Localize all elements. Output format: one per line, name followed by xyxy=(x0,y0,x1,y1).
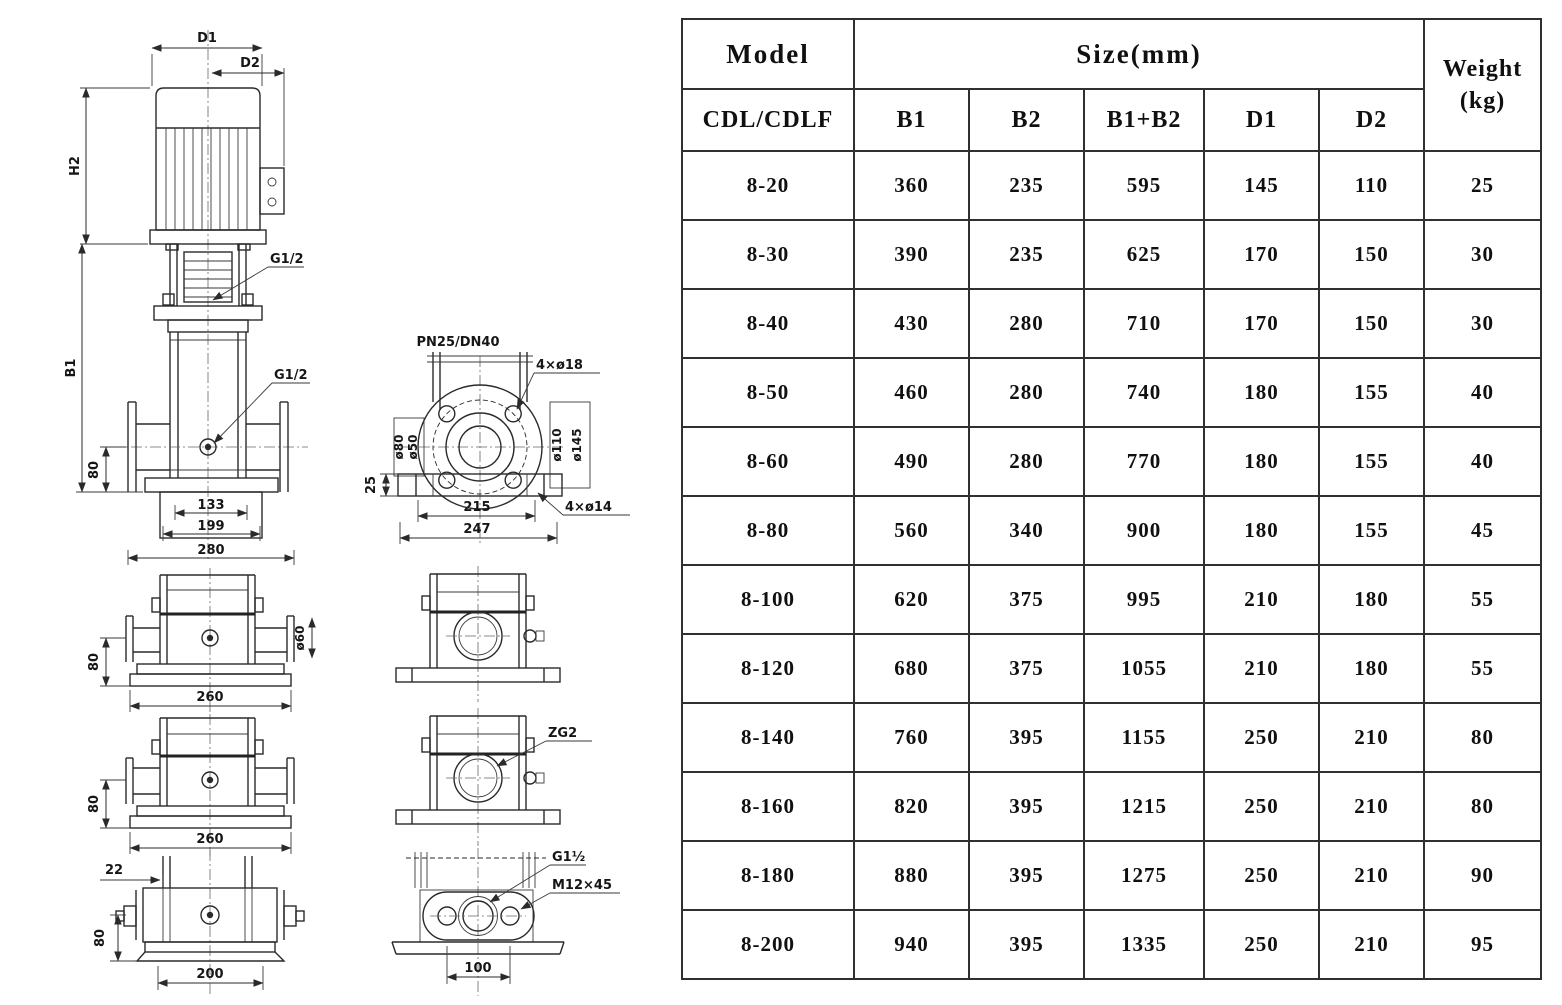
cell-b2: 395 xyxy=(969,703,1084,772)
dim-label-d1: D1 xyxy=(197,31,217,46)
dim-label-h2: H2 xyxy=(68,156,83,176)
header-col-d2: D2 xyxy=(1319,89,1424,151)
cell-weight: 80 xyxy=(1424,772,1541,841)
dim-label-80-bottom: 80 xyxy=(93,929,108,947)
cell-model: 8-200 xyxy=(682,910,854,979)
cell-d1: 250 xyxy=(1204,703,1319,772)
cell-b1: 940 xyxy=(854,910,969,979)
dim-label-100: 100 xyxy=(464,961,491,976)
table-row: 8-50 460 280 740 180 155 40 xyxy=(682,358,1541,427)
callout-label-g12-side: G1/2 xyxy=(274,368,308,383)
cell-weight: 40 xyxy=(1424,358,1541,427)
cell-b1: 360 xyxy=(854,151,969,220)
cell-weight: 55 xyxy=(1424,634,1541,703)
cell-b2: 375 xyxy=(969,565,1084,634)
table-row: 8-100 620 375 995 210 180 55 xyxy=(682,565,1541,634)
header-col-b2: B2 xyxy=(969,89,1084,151)
flange-title-label: PN25/DN40 xyxy=(416,335,499,350)
cell-weight: 45 xyxy=(1424,496,1541,565)
cell-b1-plus-b2: 625 xyxy=(1084,220,1204,289)
cell-d1: 210 xyxy=(1204,634,1319,703)
cell-b2: 280 xyxy=(969,427,1084,496)
dim-label-215: 215 xyxy=(463,500,490,515)
cell-model: 8-140 xyxy=(682,703,854,772)
cell-b1: 760 xyxy=(854,703,969,772)
cell-b2: 395 xyxy=(969,910,1084,979)
cell-b2: 235 xyxy=(969,151,1084,220)
header-model: Model xyxy=(682,19,854,89)
cell-d2: 210 xyxy=(1319,772,1424,841)
dim-label-d110: ø110 xyxy=(550,428,564,461)
header-col-d1: D1 xyxy=(1204,89,1319,151)
dim-label-133: 133 xyxy=(197,498,224,513)
cell-d1: 250 xyxy=(1204,772,1319,841)
cell-b1-plus-b2: 595 xyxy=(1084,151,1204,220)
cell-d2: 150 xyxy=(1319,289,1424,358)
cell-d2: 180 xyxy=(1319,634,1424,703)
dim-label-200: 200 xyxy=(196,967,223,982)
table-row: 8-30 390 235 625 170 150 30 xyxy=(682,220,1541,289)
spec-sheet-page: D1 D2 xyxy=(0,0,1562,1000)
dim-label-d60: ø60 xyxy=(293,626,307,651)
dim-label-d50: ø50 xyxy=(406,435,420,460)
cell-weight: 40 xyxy=(1424,427,1541,496)
dimension-table-pane: Model Size(mm) Weight (kg) CDL/CDLF B1 B… xyxy=(681,18,1540,980)
cell-d2: 155 xyxy=(1319,496,1424,565)
cell-d1: 210 xyxy=(1204,565,1319,634)
cell-d1: 145 xyxy=(1204,151,1319,220)
table-body: 8-20 360 235 595 145 110 25 8-30 390 235… xyxy=(682,151,1541,979)
cell-b1-plus-b2: 710 xyxy=(1084,289,1204,358)
cell-model: 8-20 xyxy=(682,151,854,220)
cell-b1: 680 xyxy=(854,634,969,703)
cell-model: 8-100 xyxy=(682,565,854,634)
cell-b2: 280 xyxy=(969,289,1084,358)
port-view-lower: ZG2 xyxy=(396,708,592,846)
dim-label-b1: B1 xyxy=(64,359,79,378)
header-model-sub: CDL/CDLF xyxy=(682,89,854,151)
dim-label-247: 247 xyxy=(463,522,490,537)
cell-d2: 210 xyxy=(1319,910,1424,979)
cell-d2: 180 xyxy=(1319,565,1424,634)
callout-label-g12-top: G1/2 xyxy=(270,252,304,267)
cell-b2: 395 xyxy=(969,772,1084,841)
cell-d2: 150 xyxy=(1319,220,1424,289)
cell-d2: 210 xyxy=(1319,841,1424,910)
callout-label-4xd14: 4×ø14 xyxy=(565,500,612,515)
pump-technical-drawing: D1 D2 xyxy=(0,0,660,1000)
cell-b1-plus-b2: 1275 xyxy=(1084,841,1204,910)
port-view-upper xyxy=(396,566,560,702)
dim-label-80-side-lower: 80 xyxy=(87,795,102,813)
callout-label-m12x45: M12×45 xyxy=(552,878,612,893)
cell-weight: 30 xyxy=(1424,289,1541,358)
cell-b1: 560 xyxy=(854,496,969,565)
callout-label-g1half: G1½ xyxy=(552,850,585,865)
cell-b2: 395 xyxy=(969,841,1084,910)
cell-b2: 280 xyxy=(969,358,1084,427)
cell-model: 8-40 xyxy=(682,289,854,358)
cell-b2: 235 xyxy=(969,220,1084,289)
table-row: 8-60 490 280 770 180 155 40 xyxy=(682,427,1541,496)
dim-label-d2: D2 xyxy=(240,56,260,71)
cell-b2: 375 xyxy=(969,634,1084,703)
dim-label-260-upper: 260 xyxy=(196,690,223,705)
cell-weight: 90 xyxy=(1424,841,1541,910)
cell-d1: 180 xyxy=(1204,358,1319,427)
dim-label-80-side-upper: 80 xyxy=(87,653,102,671)
spec-table: Model Size(mm) Weight (kg) CDL/CDLF B1 B… xyxy=(681,18,1542,980)
cell-d2: 110 xyxy=(1319,151,1424,220)
side-view-upper: 80 260 ø60 xyxy=(87,568,312,712)
cell-b1-plus-b2: 1215 xyxy=(1084,772,1204,841)
cell-b1-plus-b2: 995 xyxy=(1084,565,1204,634)
table-row: 8-140 760 395 1155 250 210 80 xyxy=(682,703,1541,772)
cell-model: 8-80 xyxy=(682,496,854,565)
dim-label-280: 280 xyxy=(197,543,224,558)
cell-b1-plus-b2: 740 xyxy=(1084,358,1204,427)
cell-model: 8-60 xyxy=(682,427,854,496)
cell-weight: 25 xyxy=(1424,151,1541,220)
dim-label-199: 199 xyxy=(197,519,224,534)
cell-d1: 250 xyxy=(1204,841,1319,910)
table-row: 8-120 680 375 1055 210 180 55 xyxy=(682,634,1541,703)
cell-d1: 180 xyxy=(1204,496,1319,565)
cell-model: 8-30 xyxy=(682,220,854,289)
cell-b1: 820 xyxy=(854,772,969,841)
cell-d2: 210 xyxy=(1319,703,1424,772)
cell-d1: 180 xyxy=(1204,427,1319,496)
header-size-group: Size(mm) xyxy=(854,19,1424,89)
dim-label-25: 25 xyxy=(364,476,379,494)
cell-model: 8-50 xyxy=(682,358,854,427)
table-row: 8-180 880 395 1275 250 210 90 xyxy=(682,841,1541,910)
table-row: 8-200 940 395 1335 250 210 95 xyxy=(682,910,1541,979)
header-row-columns: CDL/CDLF B1 B2 B1+B2 D1 D2 xyxy=(682,89,1541,151)
cell-b1: 430 xyxy=(854,289,969,358)
flange-top-view: PN25/DN40 ø80 ø50 xyxy=(364,335,630,546)
cell-d2: 155 xyxy=(1319,358,1424,427)
cell-b1: 880 xyxy=(854,841,969,910)
dim-label-d145: ø145 xyxy=(570,428,584,461)
callout-label-4xd18: 4×ø18 xyxy=(536,358,583,373)
cell-b1: 620 xyxy=(854,565,969,634)
side-view-lower: 80 260 xyxy=(87,714,294,856)
cell-weight: 55 xyxy=(1424,565,1541,634)
dim-label-d80: ø80 xyxy=(392,435,406,460)
oval-flange-view: G1½ M12×45 100 xyxy=(392,848,620,996)
cell-model: 8-160 xyxy=(682,772,854,841)
header-weight-line2: (kg) xyxy=(1425,85,1540,117)
cell-d1: 250 xyxy=(1204,910,1319,979)
header-col-b1: B1 xyxy=(854,89,969,151)
header-col-b1b2: B1+B2 xyxy=(1084,89,1204,151)
cell-weight: 80 xyxy=(1424,703,1541,772)
table-row: 8-80 560 340 900 180 155 45 xyxy=(682,496,1541,565)
table-row: 8-40 430 280 710 170 150 30 xyxy=(682,289,1541,358)
header-row-groups: Model Size(mm) Weight (kg) xyxy=(682,19,1541,89)
cell-weight: 95 xyxy=(1424,910,1541,979)
front-elevation-view: D1 D2 xyxy=(64,30,310,565)
cell-model: 8-180 xyxy=(682,841,854,910)
dim-label-22: 22 xyxy=(105,863,123,878)
cell-b1-plus-b2: 1055 xyxy=(1084,634,1204,703)
bottom-view: 22 xyxy=(93,850,304,996)
cell-b1: 390 xyxy=(854,220,969,289)
callout-label-zg2: ZG2 xyxy=(548,726,577,741)
cell-d2: 155 xyxy=(1319,427,1424,496)
dim-label-260-lower: 260 xyxy=(196,832,223,847)
pump-drawing-svg: D1 D2 xyxy=(0,0,660,1000)
table-row: 8-20 360 235 595 145 110 25 xyxy=(682,151,1541,220)
cell-model: 8-120 xyxy=(682,634,854,703)
header-weight: Weight (kg) xyxy=(1424,19,1541,151)
cell-b1-plus-b2: 1335 xyxy=(1084,910,1204,979)
cell-d1: 170 xyxy=(1204,289,1319,358)
cell-weight: 30 xyxy=(1424,220,1541,289)
cell-b1-plus-b2: 1155 xyxy=(1084,703,1204,772)
cell-b1-plus-b2: 770 xyxy=(1084,427,1204,496)
cell-b1: 460 xyxy=(854,358,969,427)
table-row: 8-160 820 395 1215 250 210 80 xyxy=(682,772,1541,841)
dim-label-80-front: 80 xyxy=(87,461,102,479)
cell-b1: 490 xyxy=(854,427,969,496)
cell-b2: 340 xyxy=(969,496,1084,565)
cell-b1-plus-b2: 900 xyxy=(1084,496,1204,565)
cell-d1: 170 xyxy=(1204,220,1319,289)
header-weight-line1: Weight xyxy=(1425,53,1540,85)
